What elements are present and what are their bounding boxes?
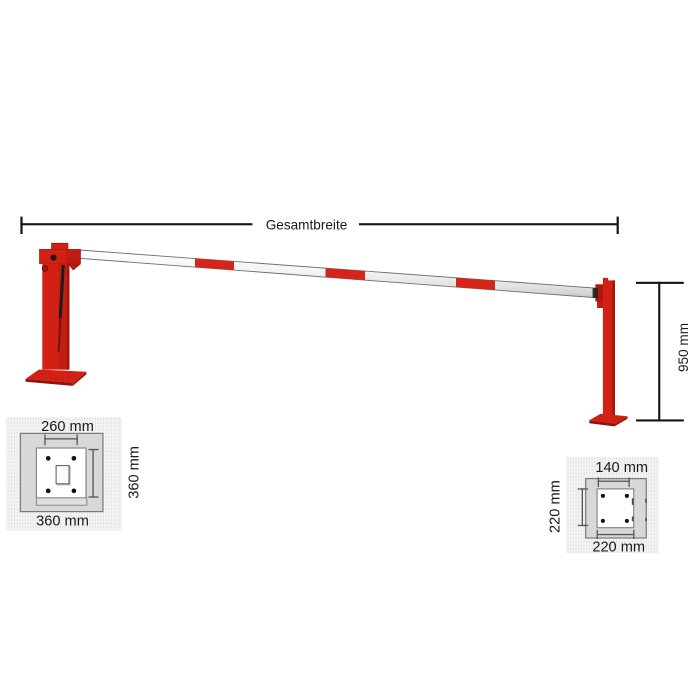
svg-text:140 mm: 140 mm (595, 460, 648, 476)
svg-text:360 mm: 360 mm (36, 514, 89, 530)
svg-text:360 mm: 360 mm (127, 446, 143, 499)
svg-text:260 mm: 260 mm (41, 419, 94, 435)
svg-text:Gesamtbreite: Gesamtbreite (266, 217, 348, 232)
svg-text:220 mm: 220 mm (592, 539, 645, 555)
svg-text:220 mm: 220 mm (547, 480, 563, 533)
svg-text:950 mm: 950 mm (676, 323, 691, 372)
